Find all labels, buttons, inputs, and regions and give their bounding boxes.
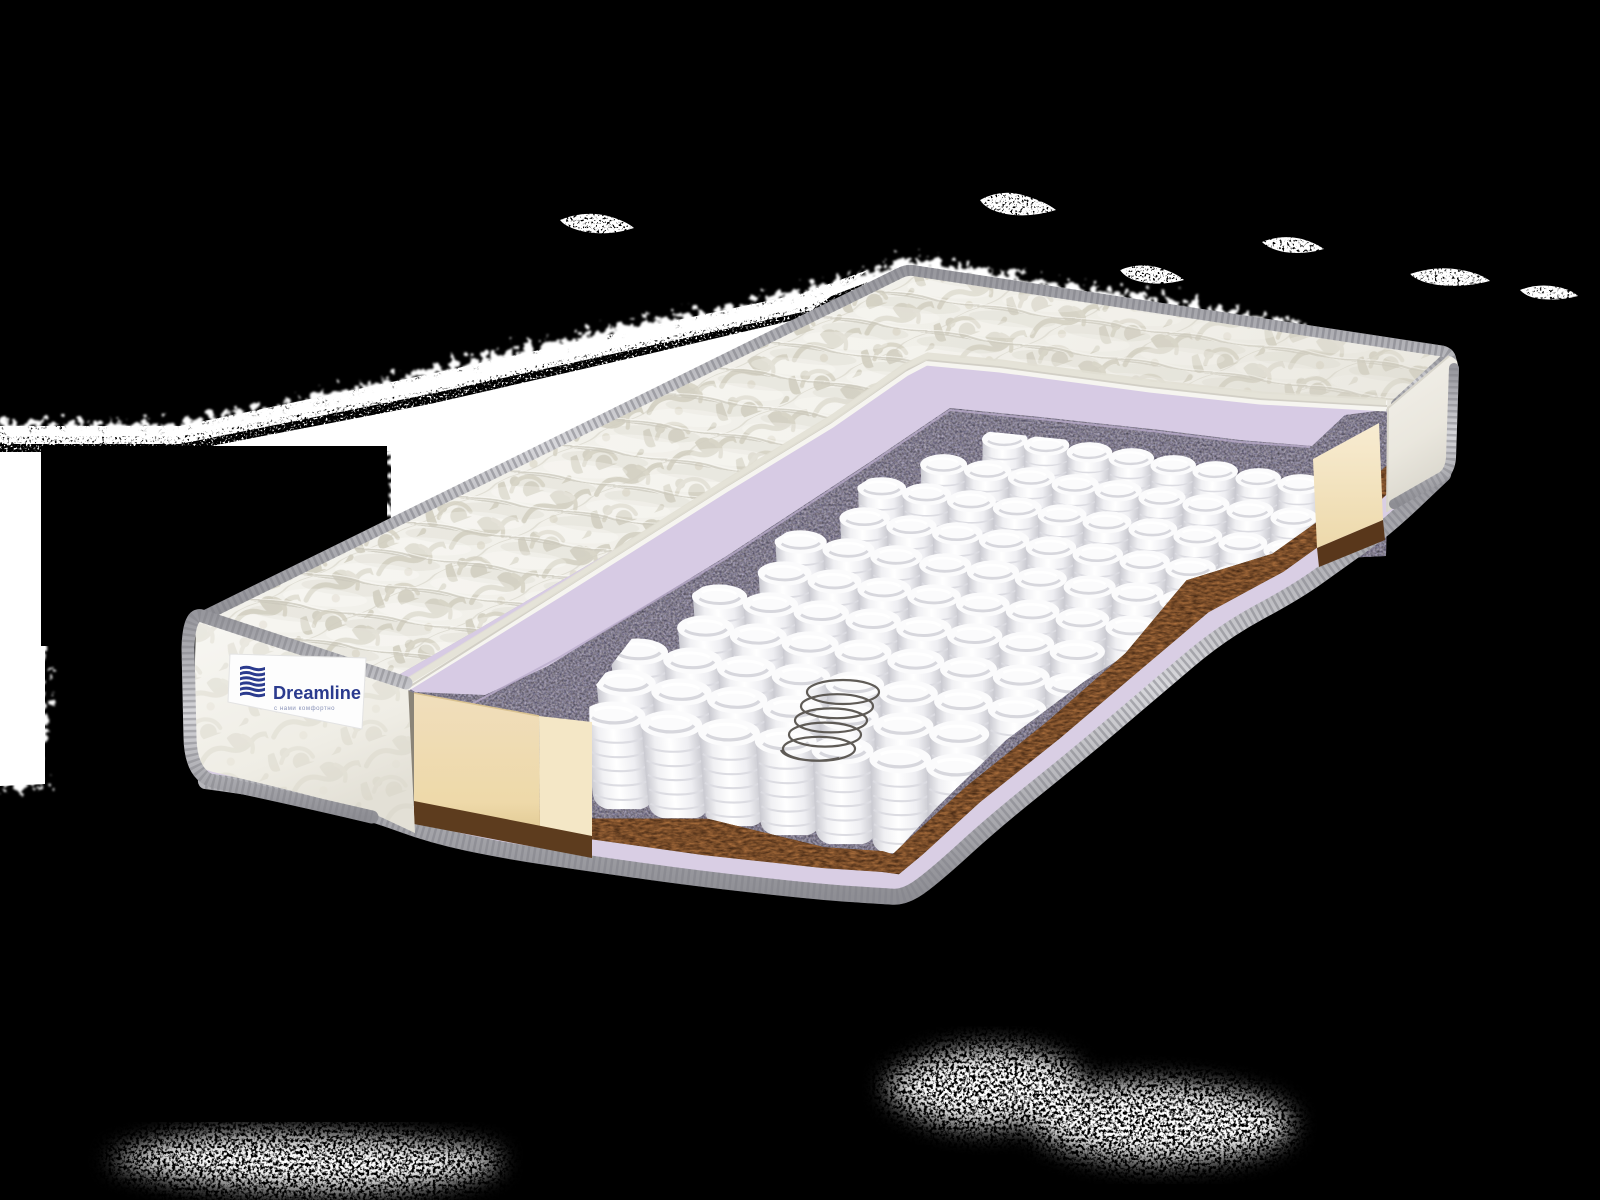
svg-text:с нами комфортно: с нами комфортно	[274, 705, 335, 712]
svg-text:Dreamline: Dreamline	[273, 683, 361, 703]
